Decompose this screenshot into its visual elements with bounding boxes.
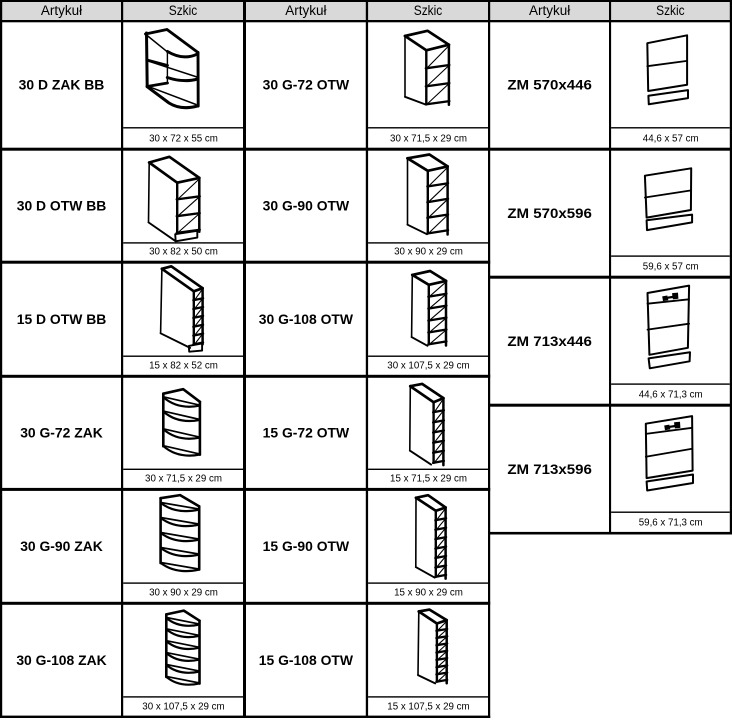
svg-text:30 x 90 x 29 cm: 30 x 90 x 29 cm [394,247,463,258]
svg-text:59,6 x 57 cm: 59,6 x 57 cm [643,262,699,273]
svg-text:30 x 107,5 x 29 cm: 30 x 107,5 x 29 cm [387,361,469,372]
svg-text:15 G-108 OTW: 15 G-108 OTW [259,652,354,668]
svg-text:Artykuł: Artykuł [285,3,326,18]
svg-text:15 D OTW BB: 15 D OTW BB [17,311,107,327]
svg-text:ZM 713x596: ZM 713x596 [507,461,592,477]
svg-text:30 x 107,5 x 29 cm: 30 x 107,5 x 29 cm [142,701,224,712]
svg-text:30 x 71,5 x 29 cm: 30 x 71,5 x 29 cm [390,134,467,145]
svg-text:15 x 107,5 x 29 cm: 15 x 107,5 x 29 cm [387,701,469,712]
svg-text:ZM 570x596: ZM 570x596 [507,205,592,221]
svg-text:30 x 72 x 55 cm: 30 x 72 x 55 cm [149,134,218,145]
svg-text:30 G-108 OTW: 30 G-108 OTW [259,311,354,327]
svg-text:Szkic: Szkic [414,3,443,18]
svg-text:15 G-72 OTW: 15 G-72 OTW [263,425,350,441]
svg-text:15 G-90 OTW: 15 G-90 OTW [263,538,350,554]
svg-text:30 G-108 ZAK: 30 G-108 ZAK [16,652,106,668]
svg-text:30 x 82 x 50 cm: 30 x 82 x 50 cm [149,247,218,258]
svg-text:Szkic: Szkic [656,3,685,18]
svg-text:30 D OTW BB: 30 D OTW BB [17,198,107,214]
svg-text:30 G-90 ZAK: 30 G-90 ZAK [20,538,103,554]
svg-text:ZM 570x446: ZM 570x446 [507,77,592,93]
svg-text:30 x 71,5 x 29 cm: 30 x 71,5 x 29 cm [145,474,222,485]
svg-text:Artykuł: Artykuł [41,3,82,18]
svg-text:Artykuł: Artykuł [529,3,570,18]
svg-text:30 x 90 x 29 cm: 30 x 90 x 29 cm [149,588,218,599]
svg-text:59,6 x 71,3 cm: 59,6 x 71,3 cm [639,518,703,529]
svg-text:30 G-72 OTW: 30 G-72 OTW [263,77,350,93]
svg-text:44,6 x 71,3 cm: 44,6 x 71,3 cm [639,390,703,401]
svg-text:ZM 713x446: ZM 713x446 [507,333,592,349]
svg-text:30 D ZAK BB: 30 D ZAK BB [19,77,105,93]
svg-text:15 x 90 x 29 cm: 15 x 90 x 29 cm [394,588,463,599]
svg-text:15 x 71,5 x 29 cm: 15 x 71,5 x 29 cm [390,474,467,485]
svg-text:30 G-90 OTW: 30 G-90 OTW [263,198,350,214]
svg-text:Szkic: Szkic [169,3,198,18]
svg-text:44,6 x 57 cm: 44,6 x 57 cm [643,134,699,145]
svg-text:30 G-72 ZAK: 30 G-72 ZAK [20,425,103,441]
svg-text:15 x 82 x 52 cm: 15 x 82 x 52 cm [149,361,218,372]
